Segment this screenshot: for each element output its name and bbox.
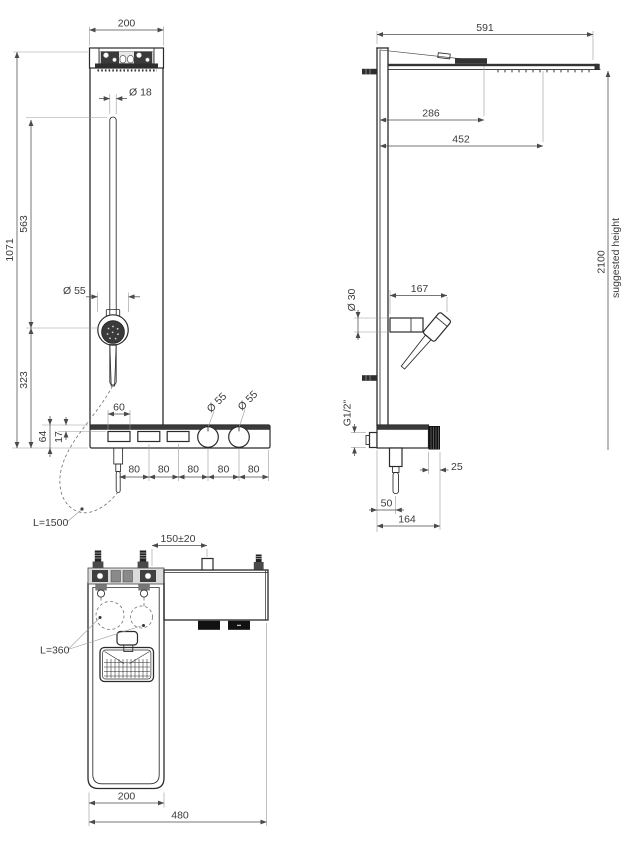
plan-grate (100, 648, 154, 682)
shelf-slot-1 (108, 432, 130, 442)
side-column (377, 48, 388, 425)
plan-view: 150±20 L=360 200 480 (40, 533, 268, 826)
front-hose-curve (60, 386, 118, 513)
dim-spacing-2: 80 (158, 464, 170, 476)
dim-spacing-5: 80 (248, 464, 260, 476)
side-hand-shower (390, 312, 451, 373)
label-hose-tail-length: L=360 (40, 645, 70, 657)
dim-arm-length: 591 (476, 22, 494, 34)
dim-spacing-3: 80 (187, 464, 199, 476)
side-shelf (377, 425, 440, 494)
wall-anchor-bolt-bottom (362, 375, 377, 381)
label-suggested-height: suggested height (610, 218, 622, 298)
front-head-cap (90, 48, 164, 70)
dim-slide-bar-diameter: Ø 18 (129, 87, 152, 99)
dim-spacing-4: 80 (218, 464, 230, 476)
plan-inlet-bolt-left (93, 551, 104, 569)
front-dimensions: 200 Ø 18 1071 563 323 Ø 55 60 (4, 18, 269, 530)
dim-knob-depth: 25 (451, 461, 463, 473)
front-view: 200 Ø 18 1071 563 323 Ø 55 60 (4, 18, 270, 530)
dim-lower-height: 323 (18, 371, 30, 389)
side-inlet-fitting (366, 433, 377, 448)
dim-handshower-reach: 167 (411, 283, 429, 295)
dim-overall-width: 480 (171, 810, 189, 822)
dim-front-panel-width: 200 (118, 18, 136, 30)
side-overhead-arm (381, 50, 601, 72)
shower-panel-dimension-drawing: 200 Ø 18 1071 563 323 Ø 55 60 (0, 0, 630, 854)
dim-knob2-diameter: Ø 55 (236, 388, 261, 413)
technical-drawing-page: 200 Ø 18 1071 563 323 Ø 55 60 (0, 0, 630, 854)
shelf-slot-2 (138, 432, 160, 442)
plan-knob-1 (198, 621, 220, 630)
dim-inlet-spacing: 150±20 (161, 533, 196, 545)
plan-shelf (164, 555, 268, 630)
dim-thread-size: G1/2" (342, 399, 354, 426)
plan-hose-connections (95, 585, 152, 630)
front-panel-body (90, 68, 164, 425)
dim-shelf-height: 64 (37, 431, 49, 443)
plan-body (88, 583, 164, 789)
dim-slot-inset: 17 (53, 431, 65, 443)
plan-shelf-inlet (202, 559, 213, 571)
dim-clamp-distance: 286 (422, 108, 440, 120)
dim-suggested-height-value: 2100 (596, 250, 608, 274)
wall-anchor-bolt-top (362, 69, 377, 75)
dim-mid-distance: 452 (452, 134, 470, 146)
dim-holder-diameter: Ø 30 (346, 288, 358, 311)
shelf-slot-3 (167, 432, 189, 442)
dim-hose-distance: 50 (381, 498, 393, 510)
dim-body-width: 200 (118, 791, 136, 803)
side-view: 591 286 452 2100 suggested height Ø 30 1… (342, 22, 623, 532)
dim-shelf-depth: 164 (398, 514, 416, 526)
plan-manifold (88, 568, 164, 584)
dim-bar-height: 563 (18, 215, 30, 233)
plan-inlet-bolt-right (138, 551, 149, 569)
dim-total-height: 1071 (4, 238, 16, 262)
hose-coil-1 (96, 602, 124, 630)
plan-handshower-rest (117, 632, 138, 652)
dim-handshower-diameter: Ø 55 (63, 285, 86, 297)
side-dimensions: 591 286 452 2100 suggested height Ø 30 1… (342, 22, 623, 532)
front-hand-shower (98, 310, 128, 387)
dim-spacing-1: 80 (128, 464, 140, 476)
dim-slot-width: 60 (113, 402, 125, 414)
label-hose-length: L=1500 (33, 517, 68, 529)
hose-coil-2 (131, 606, 153, 628)
front-shelf (90, 425, 270, 493)
dim-knob1-diameter: Ø 55 (205, 390, 230, 415)
